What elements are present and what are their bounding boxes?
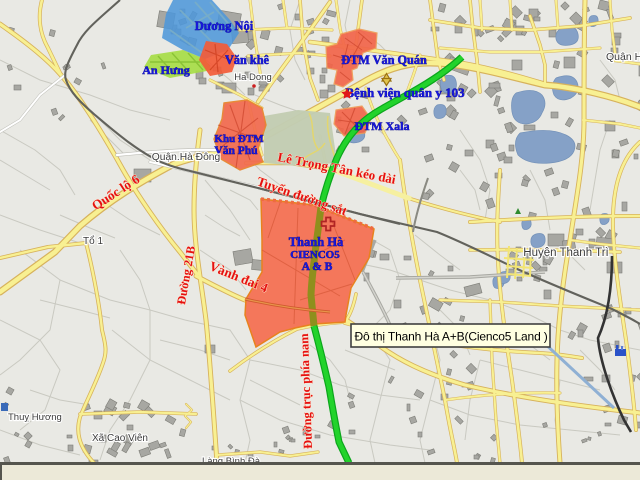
svg-text:Ha Dong: Ha Dong	[234, 72, 272, 83]
svg-text:Xã Cao Viên: Xã Cao Viên	[92, 433, 148, 444]
svg-text:ĐTM Xala: ĐTM Xala	[355, 119, 410, 133]
svg-text:Thanh Hà: Thanh Hà	[289, 235, 344, 249]
svg-text:Khu ĐTM: Khu ĐTM	[214, 133, 264, 145]
svg-text:ĐTM Văn Quán: ĐTM Văn Quán	[341, 53, 427, 67]
svg-text:Bệnh viện quân y 103: Bệnh viện quân y 103	[345, 85, 465, 100]
svg-text:Văn Phú: Văn Phú	[214, 145, 258, 157]
svg-text:Dương Nội: Dương Nội	[195, 19, 254, 33]
svg-text:Văn khê: Văn khê	[225, 53, 269, 67]
svg-text:Quận Hà: Quận Hà	[606, 51, 640, 63]
svg-text:An Hưng: An Hưng	[142, 63, 190, 77]
svg-text:Tổ 1: Tổ 1	[83, 235, 103, 247]
svg-text:A & B: A & B	[302, 261, 333, 273]
svg-text:Quận.Hà Đông: Quận.Hà Đông	[152, 152, 221, 163]
svg-text:CIENCO5: CIENCO5	[290, 249, 340, 261]
svg-text:Đô thị Thanh Hà A+B(Cienco5 La: Đô thị Thanh Hà A+B(Cienco5 Land )	[355, 330, 548, 344]
svg-text:Huyện Thanh Trì: Huyện Thanh Trì	[523, 247, 608, 259]
svg-text:Thuỵ Hương: Thuỵ Hương	[8, 412, 62, 423]
